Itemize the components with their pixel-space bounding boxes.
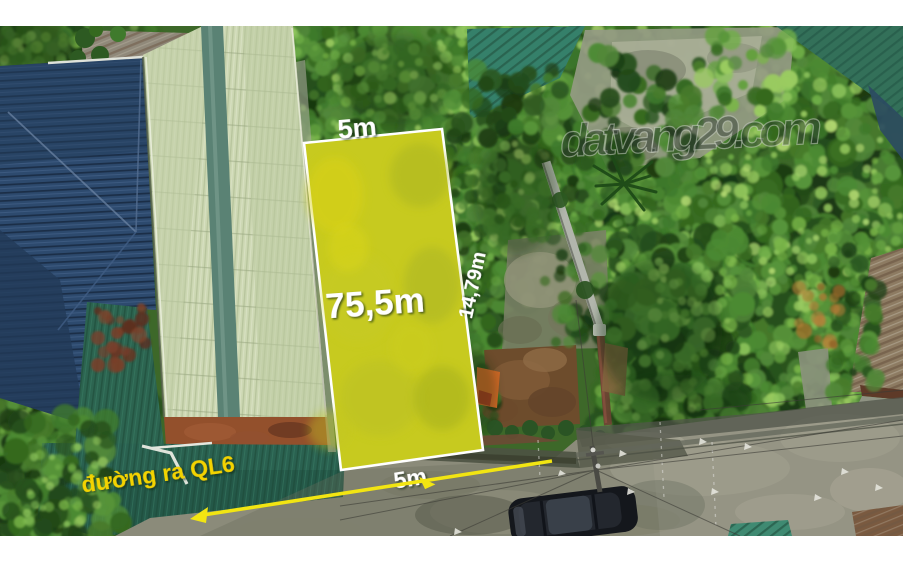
- svg-text:5m: 5m: [392, 463, 429, 494]
- svg-text:5m: 5m: [336, 111, 377, 144]
- svg-text:75,5m: 75,5m: [324, 281, 426, 327]
